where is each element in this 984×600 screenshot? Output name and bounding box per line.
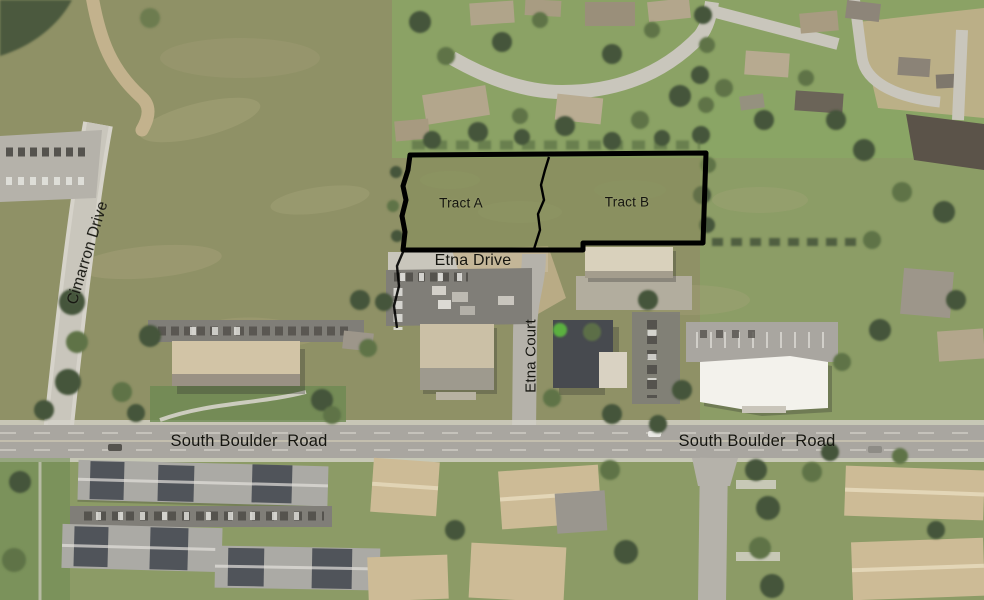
shed xyxy=(897,57,930,77)
center-building xyxy=(420,324,497,400)
aerial-photo xyxy=(0,0,984,600)
east-dark-building xyxy=(553,320,627,395)
aerial-map: Tract A Tract B Etna Drive Etna Court Ci… xyxy=(0,0,984,600)
parking-lot-northwest xyxy=(0,130,102,202)
long-building xyxy=(585,247,676,282)
white-building-parcel xyxy=(686,322,838,416)
south-street-flare xyxy=(692,458,738,486)
etna-parking-lot xyxy=(386,268,532,330)
house-roof xyxy=(937,328,984,361)
tract-interior xyxy=(403,153,706,250)
house-roof xyxy=(900,268,954,318)
